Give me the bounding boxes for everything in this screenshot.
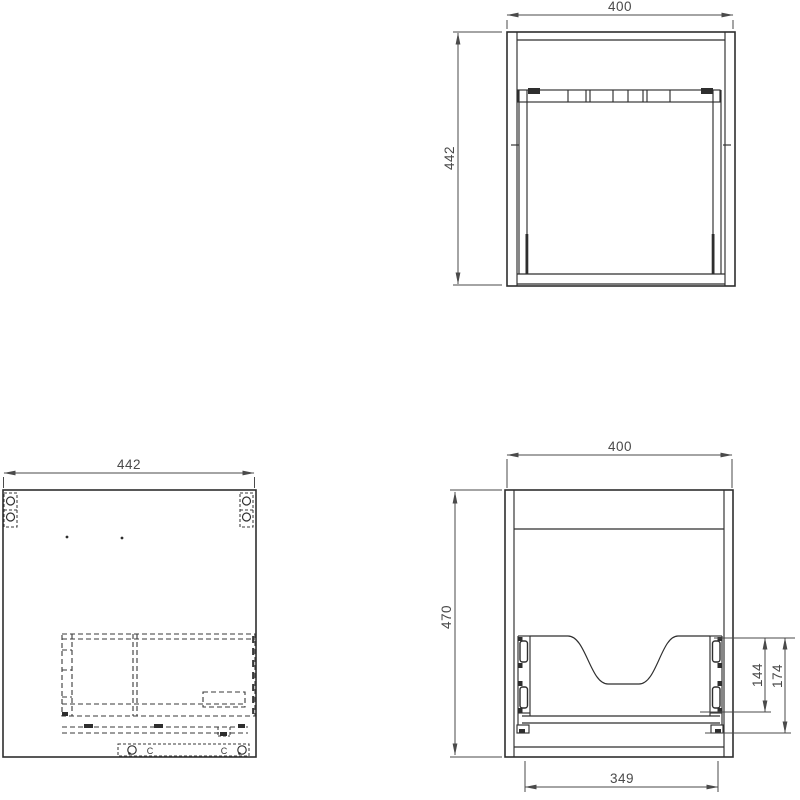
side-drawer-hidden-outline <box>62 634 255 716</box>
front-cabinet-outline <box>505 490 733 757</box>
front-view: 400 470 144 174 349 <box>439 439 795 792</box>
front-dim-drawer-width: 349 <box>525 761 718 792</box>
front-dim-cutout-height: 144 <box>750 638 765 712</box>
side-clip-label-left: C <box>147 746 154 756</box>
front-dim-drawer-width-label: 349 <box>610 771 634 786</box>
front-dim-height-label: 470 <box>439 605 454 629</box>
plan-dim-depth: 442 <box>442 32 502 285</box>
side-clip-label-right: C <box>221 746 228 756</box>
plan-drawer-assembly <box>518 88 721 274</box>
plan-cabinet-outline <box>507 32 735 286</box>
side-dowel-holes <box>66 536 124 540</box>
plan-dim-depth-label: 442 <box>442 146 457 170</box>
front-slide-rail-right <box>710 636 723 734</box>
plan-slide-mark-right <box>712 234 715 274</box>
side-hinge-plate-left <box>4 493 17 527</box>
front-dim-width-label: 400 <box>608 439 632 454</box>
plan-rail-endcap-right <box>701 88 713 94</box>
plan-slide-mark-left <box>526 234 529 274</box>
cad-drawing-sheet: 400 442 <box>0 0 800 800</box>
side-panel-outline <box>3 490 256 757</box>
front-dim-rail-label: 174 <box>770 664 785 688</box>
plan-dim-width: 400 <box>507 0 733 29</box>
side-dim-depth: 442 <box>4 457 255 488</box>
front-dim-rail-height: 174 <box>770 638 785 733</box>
plan-view: 400 442 <box>442 0 735 286</box>
side-hinge-plate-right <box>240 493 253 527</box>
front-dim-cutout-label: 144 <box>750 663 765 687</box>
side-view: C C 442 <box>3 457 256 757</box>
side-bottom-clip-strip: C C <box>118 744 249 756</box>
front-slide-rail-left <box>517 636 530 734</box>
side-dim-depth-label: 442 <box>117 457 141 472</box>
front-drawer-bottom-bar <box>522 716 720 723</box>
front-dim-height: 470 <box>439 490 502 757</box>
front-dim-width: 400 <box>507 439 732 488</box>
drawing-canvas: 400 442 <box>0 0 800 800</box>
plan-rail-endcap-left <box>528 88 540 94</box>
plan-dim-width-label: 400 <box>608 0 632 14</box>
front-drawer-back-cutout <box>530 636 710 716</box>
side-drawer-small-fitting <box>203 692 245 707</box>
